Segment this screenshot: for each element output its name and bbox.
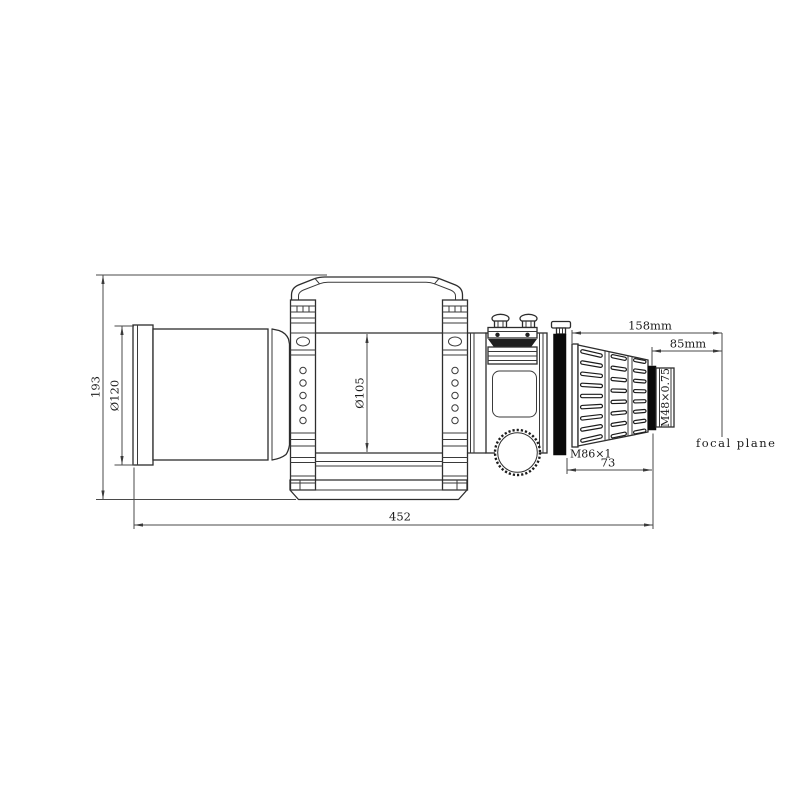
front-tube-ring	[291, 300, 316, 490]
drawing-page: M48×0.75 focal plane 193 Ø120	[0, 0, 800, 800]
telescope-technical-drawing: M48×0.75 focal plane 193 Ø120	[0, 0, 800, 800]
front-thread-label: M86×1	[570, 448, 611, 461]
dim-dew-shield-diameter: Ø120	[108, 326, 135, 465]
rear-tube-ring	[443, 300, 468, 490]
lens-cap-ring	[133, 325, 153, 465]
backfocus-total-label: 158mm	[628, 319, 672, 333]
dew-shield	[153, 329, 290, 460]
dew-shield-taper	[272, 329, 290, 460]
main-tube	[316, 333, 443, 453]
carry-handle	[292, 277, 463, 300]
tube-diameter-label: Ø105	[353, 377, 367, 408]
focal-plane-label: focal plane	[696, 436, 776, 450]
overall-length-label: 452	[389, 510, 411, 524]
dim-tube-diameter: Ø105	[353, 334, 369, 452]
dovetail-rail	[290, 462, 467, 500]
dew-shield-diameter-label: Ø120	[108, 380, 122, 411]
m48-adapter: M48×0.75	[656, 368, 674, 427]
finder-shoe	[488, 314, 537, 364]
drawtube-cone	[572, 344, 648, 447]
rear-cell	[468, 333, 487, 453]
thumbscrew-right	[520, 314, 537, 327]
rear-black-ring	[648, 366, 656, 430]
telescope-outline: M48×0.75	[133, 277, 674, 500]
overall-height-label: 193	[89, 376, 103, 398]
shoe-groove	[489, 340, 536, 348]
tension-screw	[552, 322, 571, 335]
focus-knob	[495, 430, 540, 475]
dim-backfocus-adapter: 85mm	[652, 337, 722, 366]
thumbscrew-left	[492, 314, 509, 327]
m86-ring	[554, 334, 567, 455]
rear-thread-label: M48×0.75	[659, 368, 672, 427]
cone-louvers-1	[580, 349, 602, 442]
backfocus-adapter-label: 85mm	[670, 337, 707, 351]
